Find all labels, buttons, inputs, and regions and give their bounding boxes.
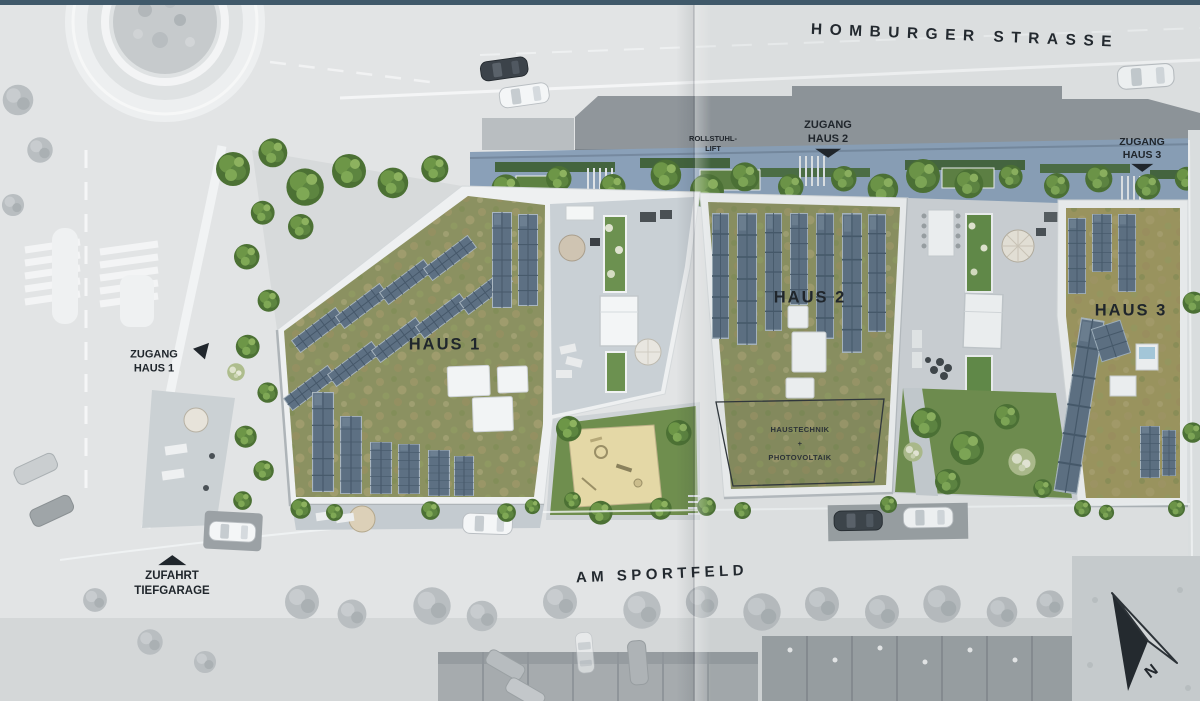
building-label-haus-2: HAUS 2 [774,288,847,309]
access-label-haus-3: ZUGANG HAUS 3 [1119,136,1165,172]
page-right-tint [695,0,1200,701]
arrow-down-icon [1131,164,1153,172]
access-label-tiefgarage: ZUFAHRT TIEFGARAGE [134,555,209,599]
arrow-up-icon [158,555,186,565]
building-label-haus-1: HAUS 1 [409,335,482,356]
stair-core [600,296,638,346]
arrow-down-icon [815,148,841,157]
page-fold-seam [676,0,694,701]
access-label-rollstuhl-lift: ROLLSTUHL- LIFT [689,134,737,154]
building-label-haus-3: HAUS 3 [1095,301,1168,322]
sand-playground [568,425,662,507]
site-plan-page: HOMBURGER STRASSE AM SPORTFELD ZUGANG HA… [0,0,1200,701]
roof-area-label-haustechnik: HAUSTECHNIK + PHOTOVOLTAIK [768,423,831,465]
page-top-border [0,0,1200,5]
access-label-haus-1: ZUGANG HAUS 1 [130,348,178,376]
access-label-haus-2: ZUGANG HAUS 2 [804,119,852,158]
parasol [184,408,208,432]
